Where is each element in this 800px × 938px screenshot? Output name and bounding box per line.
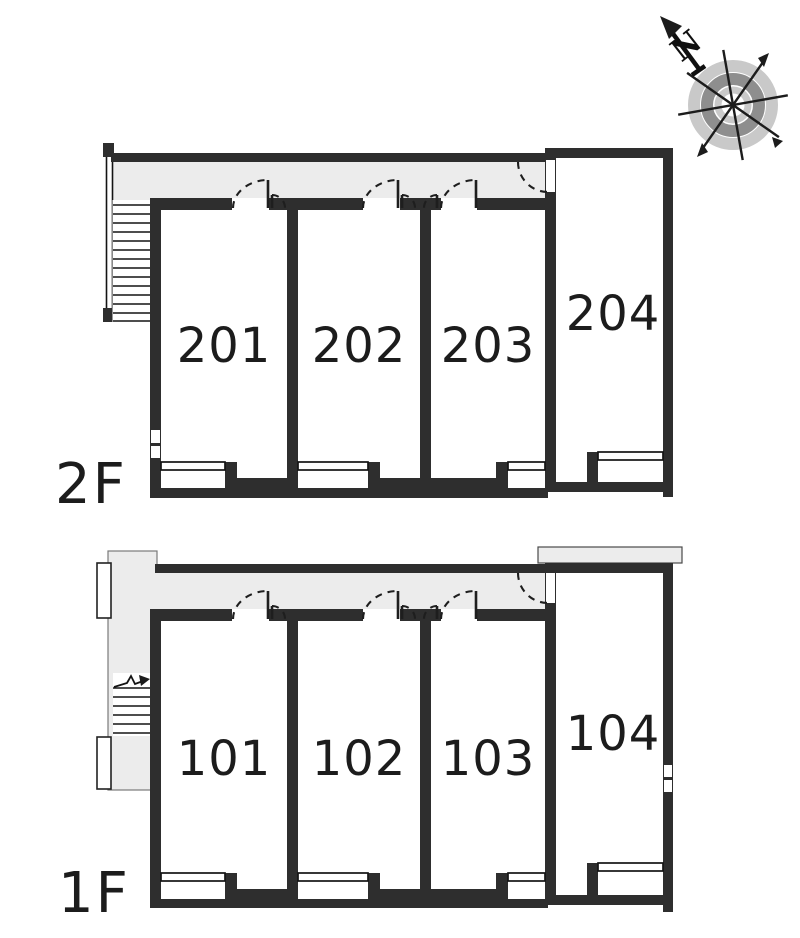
compass-rose-icon: N (660, 16, 788, 160)
floor-plan-2f: 201 202 203 204 2F (55, 143, 673, 517)
room-label-203: 203 (441, 318, 536, 374)
roof-strip-1f (538, 547, 682, 563)
floor-plan-canvas: N (0, 0, 800, 938)
room-labels-2f: 201 202 203 204 (177, 286, 661, 374)
corridor-top-wall-2f (111, 153, 553, 162)
floor-label-1f: 1F (58, 861, 130, 926)
floor-label-2f: 2F (55, 452, 127, 517)
room-label-202: 202 (312, 318, 407, 374)
room-label-204: 204 (566, 286, 661, 342)
floor-plan-drawing: N (0, 0, 800, 938)
room-label-104: 104 (566, 706, 661, 762)
staircase-2f (113, 200, 151, 322)
room-label-102: 102 (312, 731, 407, 787)
corridor-top-wall-1f (155, 564, 553, 573)
room-label-101: 101 (177, 731, 272, 787)
floor-plan-1f: 101 102 103 104 1F (58, 547, 682, 926)
utility-box-bottom (97, 737, 111, 789)
room-label-103: 103 (441, 731, 536, 787)
utility-box-top (97, 563, 111, 618)
room-labels-1f: 101 102 103 104 (177, 706, 661, 787)
north-arrow-icon: N (660, 16, 709, 75)
staircase-1f (113, 673, 150, 736)
left-wall-2f (103, 143, 114, 322)
room-label-201: 201 (177, 318, 272, 374)
